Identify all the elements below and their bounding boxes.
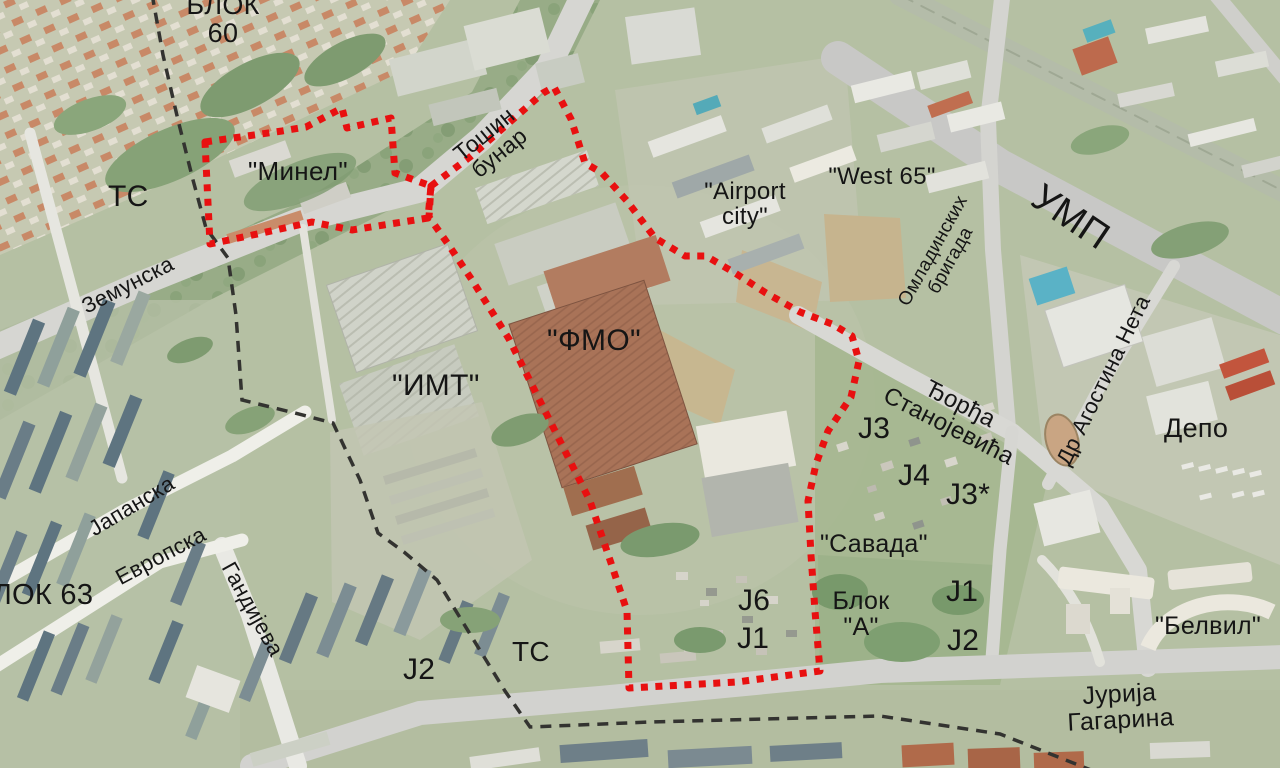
label-j3-star: J3*: [946, 479, 990, 510]
label-j1-mid: J1: [737, 623, 769, 654]
label-minel: "Минел": [248, 158, 348, 185]
label-savada: "Савада": [820, 531, 928, 557]
label-airport-city: "Airport city": [695, 180, 795, 230]
label-depo: Депо: [1164, 414, 1228, 442]
label-blok-60: БЛОК 60: [168, 0, 278, 47]
label-j1-east: J1: [946, 576, 978, 607]
label-j6: J6: [738, 585, 770, 616]
label-belvil: "Белвил": [1155, 613, 1261, 639]
aerial-map: БЛОК 60 ТС "Минел" Тошин бунар Земунска …: [0, 0, 1280, 768]
label-blok-a: Блок "А": [831, 588, 891, 640]
label-j2-west: J2: [403, 654, 435, 685]
label-west-65: "West 65": [827, 165, 937, 190]
label-imt: "ИМТ": [392, 370, 480, 401]
label-ts-lower: ТС: [512, 637, 550, 666]
label-j3: J3: [858, 413, 890, 444]
label-blok-63: ЛОК 63: [0, 580, 98, 610]
label-fmo: "ФМО": [547, 325, 641, 356]
label-ts-upper: ТС: [108, 181, 149, 212]
label-j2-east: J2: [947, 625, 979, 656]
label-j4: J4: [898, 460, 930, 491]
street-label-jurija-gagarina: Јурија Гагарина: [1029, 676, 1211, 737]
